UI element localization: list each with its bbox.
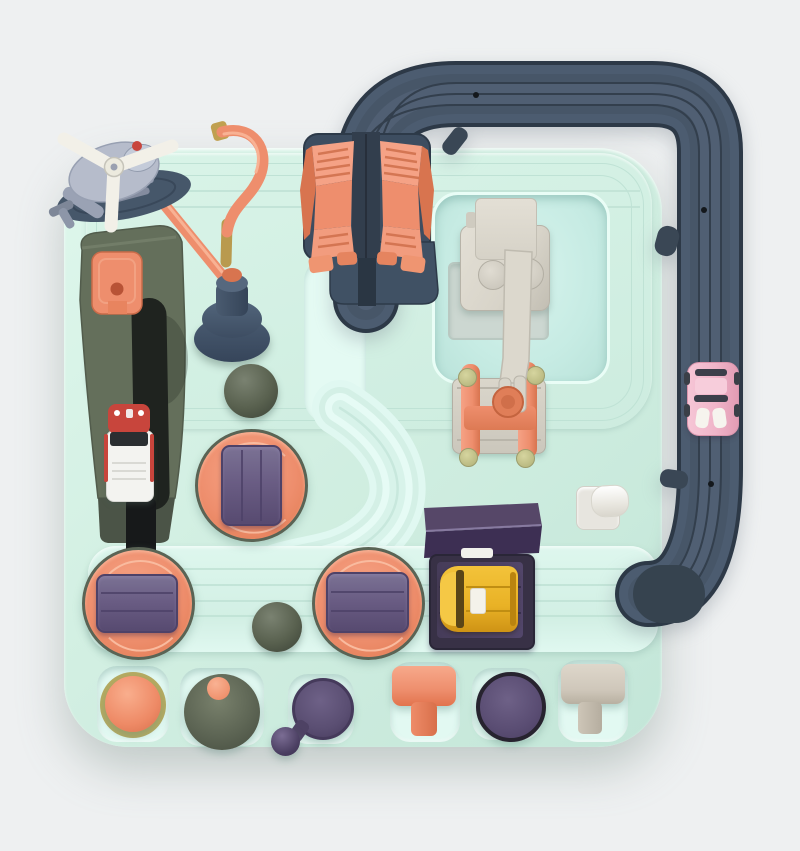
orange-t-lever-head bbox=[392, 666, 456, 706]
orange-dome-button bbox=[105, 676, 161, 732]
forearm-link bbox=[500, 250, 532, 384]
purple-round-button bbox=[476, 672, 546, 742]
beige-t-lever-head bbox=[561, 664, 625, 704]
product-photo-race-track-toy bbox=[0, 0, 800, 851]
orange-t-lever-stem bbox=[411, 702, 437, 736]
cone-knob-ball bbox=[207, 677, 230, 700]
beige-t-lever-stem bbox=[578, 702, 602, 734]
gripper-hub-center bbox=[501, 395, 515, 409]
joystick-ball bbox=[271, 727, 300, 756]
